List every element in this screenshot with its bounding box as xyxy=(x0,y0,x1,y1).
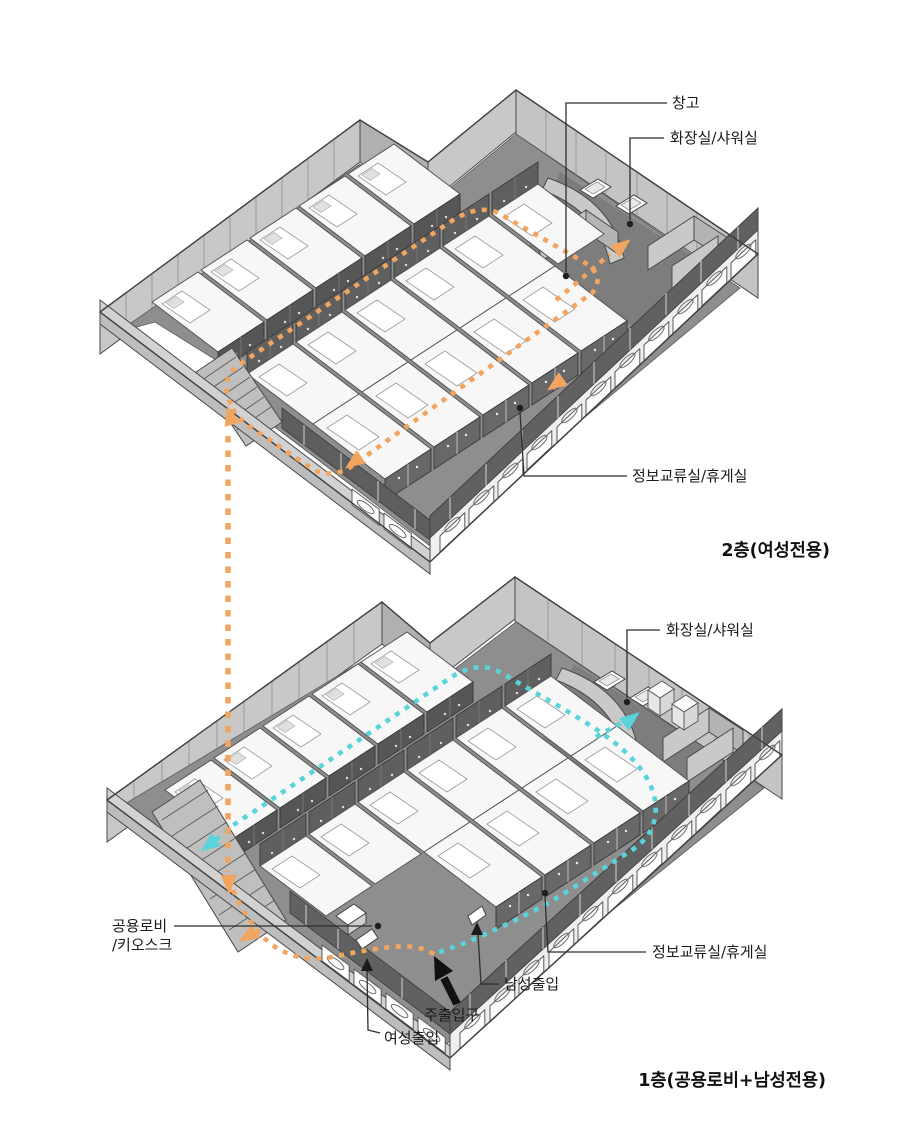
second-floor-title: 2층(여성전용) xyxy=(721,541,830,561)
label-restroom-1f: 화장실/샤워실 xyxy=(666,621,754,639)
label-storage: 창고 xyxy=(672,94,700,112)
label-lobby-line2: /키오스크 xyxy=(112,936,172,954)
first-floor-plan xyxy=(107,577,782,1070)
label-lobby-line1: 공용로비 xyxy=(112,917,167,935)
label-lounge-1f: 정보교류실/휴게실 xyxy=(652,943,767,961)
first-floor-title: 1층(공용로비+남성전용) xyxy=(638,1071,826,1091)
floor-plan-diagram: 창고 화장실/샤워실 정보교류실/휴게실 2층(여성전용) 화장실/샤워실 공용… xyxy=(0,0,900,1125)
label-female-entrance: 여성출입 xyxy=(384,1029,439,1047)
second-floor-plan xyxy=(100,90,758,574)
label-male-entrance: 남성출입 xyxy=(504,975,559,993)
label-restroom-2f: 화장실/샤워실 xyxy=(670,129,758,147)
label-lounge-2f: 정보교류실/휴게실 xyxy=(632,467,747,485)
diagram-canvas: 창고 화장실/샤워실 정보교류실/휴게실 2층(여성전용) 화장실/샤워실 공용… xyxy=(0,0,900,1125)
label-main-entrance: 주출입구 xyxy=(424,1006,479,1024)
